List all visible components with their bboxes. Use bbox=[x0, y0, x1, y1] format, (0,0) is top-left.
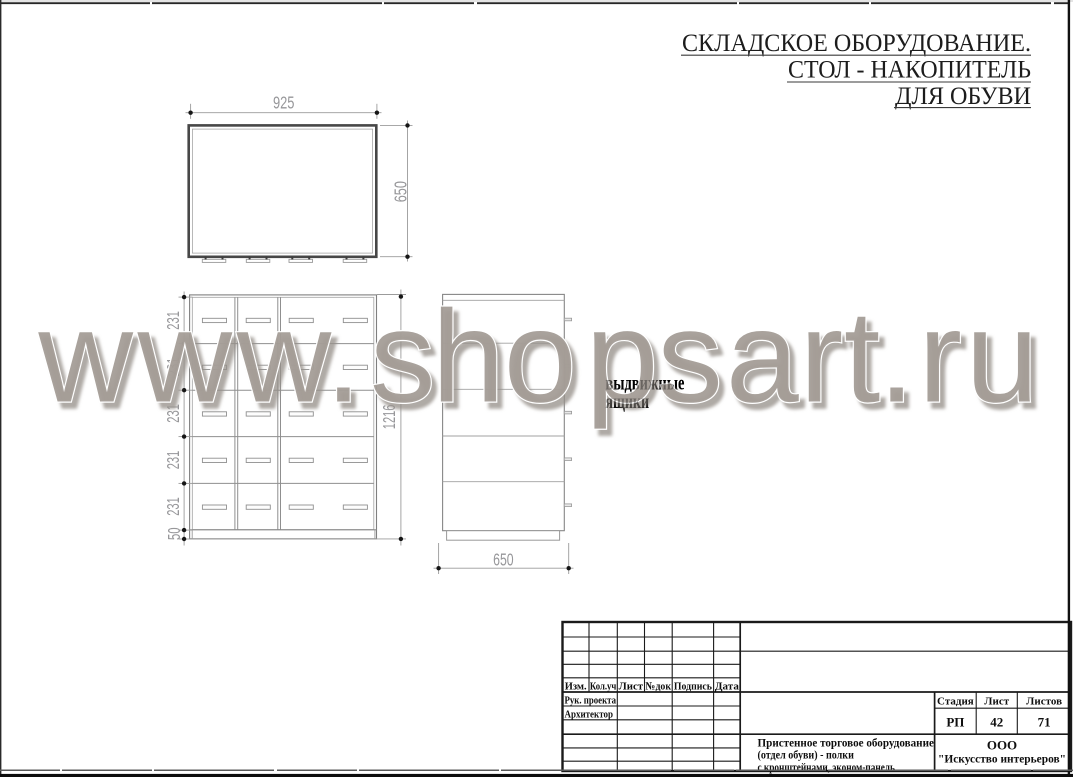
svg-text:ООО: ООО bbox=[987, 738, 1017, 753]
svg-text:Подпись: Подпись bbox=[674, 681, 712, 693]
svg-text:№док: №док bbox=[646, 681, 672, 693]
svg-text:с кронштейнами, эконом-панель: с кронштейнами, эконом-панель bbox=[758, 760, 896, 774]
svg-text:231: 231 bbox=[163, 451, 183, 470]
svg-text:www.shopsart.ru: www.shopsart.ru bbox=[37, 283, 1038, 430]
svg-text:Рук. проекта: Рук. проекта bbox=[565, 695, 617, 707]
svg-text:Дата: Дата bbox=[715, 681, 739, 693]
svg-text:СТОЛ - НАКОПИТЕЛЬ: СТОЛ - НАКОПИТЕЛЬ bbox=[788, 57, 1031, 84]
svg-text:Изм.: Изм. bbox=[565, 681, 587, 693]
svg-text:42: 42 bbox=[990, 715, 1003, 730]
svg-text:650: 650 bbox=[390, 181, 410, 202]
svg-text:РП: РП bbox=[946, 715, 964, 730]
svg-text:650: 650 bbox=[493, 550, 514, 570]
svg-text:ящики: ящики bbox=[605, 389, 649, 413]
svg-text:Лист: Лист bbox=[619, 681, 644, 693]
svg-text:50: 50 bbox=[164, 528, 184, 541]
svg-text:Листов: Листов bbox=[1026, 696, 1062, 708]
svg-text:"Искусство интерьеров": "Искусство интерьеров" bbox=[938, 753, 1066, 765]
svg-text:СКЛАДСКОЕ ОБОРУДОВАНИЕ.: СКЛАДСКОЕ ОБОРУДОВАНИЕ. bbox=[682, 30, 1031, 57]
svg-text:ДЛЯ ОБУВИ: ДЛЯ ОБУВИ bbox=[895, 83, 1031, 110]
svg-text:Кол.уч: Кол.уч bbox=[590, 681, 617, 693]
svg-text:231: 231 bbox=[163, 497, 183, 516]
svg-text:Стадия: Стадия bbox=[937, 696, 974, 708]
svg-text:925: 925 bbox=[273, 92, 295, 112]
svg-text:71: 71 bbox=[1038, 715, 1051, 730]
svg-text:Архитектор: Архитектор bbox=[565, 709, 614, 721]
svg-text:Лист: Лист bbox=[984, 696, 1009, 708]
